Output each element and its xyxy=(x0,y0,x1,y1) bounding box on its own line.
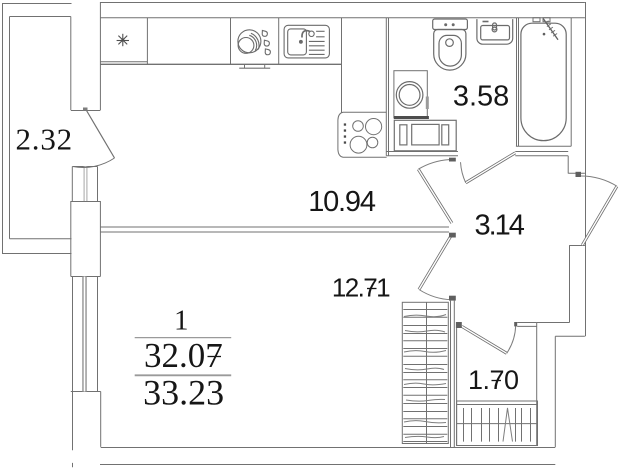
svg-text:33.23: 33.23 xyxy=(143,373,224,413)
svg-text:2.32: 2.32 xyxy=(15,122,72,157)
svg-text:1: 1 xyxy=(174,304,189,336)
svg-text:1.70: 1.70 xyxy=(468,365,519,395)
svg-text:32.07: 32.07 xyxy=(144,336,223,375)
svg-text:3.14: 3.14 xyxy=(474,210,524,242)
svg-text:3.58: 3.58 xyxy=(453,80,509,112)
svg-text:12.71: 12.71 xyxy=(332,273,390,303)
svg-text:10.94: 10.94 xyxy=(308,186,376,218)
